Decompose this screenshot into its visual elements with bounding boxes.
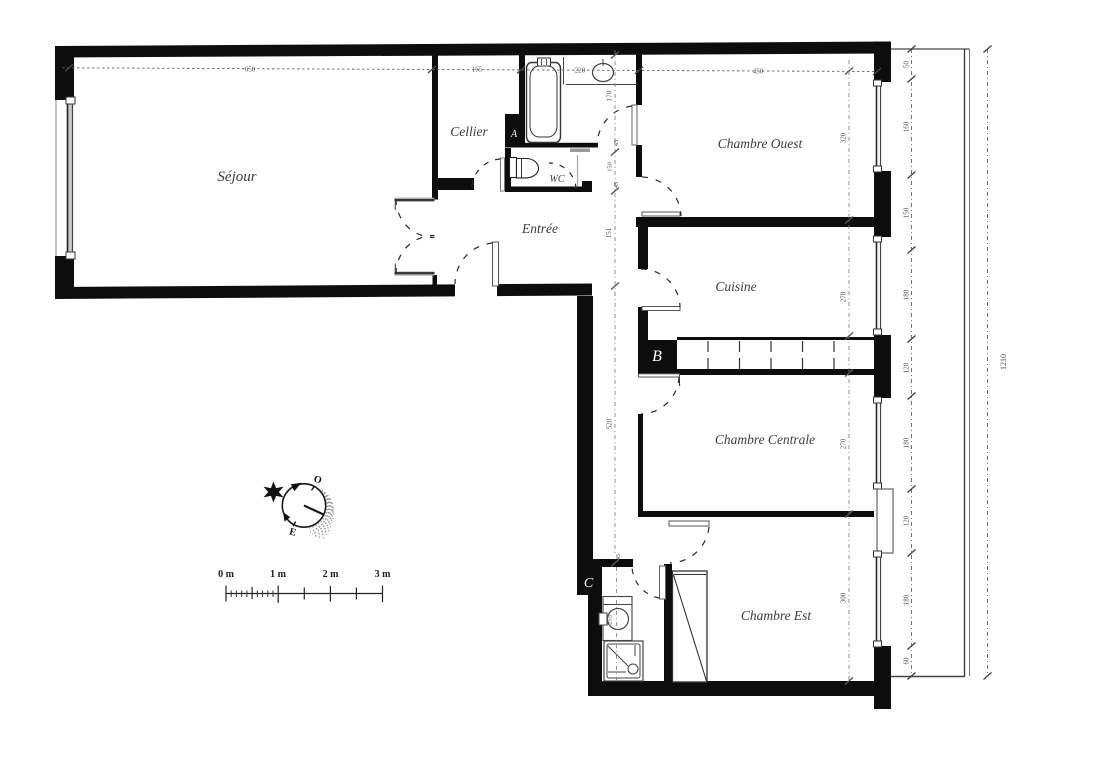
svg-text:120: 120 bbox=[903, 362, 911, 373]
svg-text:170: 170 bbox=[606, 90, 614, 101]
svg-text:50: 50 bbox=[903, 61, 911, 69]
svg-text:450: 450 bbox=[753, 68, 764, 76]
svg-text:180: 180 bbox=[903, 437, 911, 448]
svg-text:Chambre Ouest: Chambre Ouest bbox=[718, 136, 804, 151]
svg-text:255: 255 bbox=[607, 615, 614, 625]
svg-text:120: 120 bbox=[903, 515, 911, 526]
svg-text:Chambre Centrale: Chambre Centrale bbox=[715, 432, 815, 447]
svg-text:220: 220 bbox=[575, 67, 586, 75]
svg-text:45: 45 bbox=[613, 140, 620, 147]
svg-text:151: 151 bbox=[605, 227, 613, 238]
svg-text:3 m: 3 m bbox=[375, 569, 392, 580]
svg-text:1210: 1210 bbox=[999, 354, 1008, 370]
svg-text:60: 60 bbox=[903, 657, 911, 665]
svg-text:Séjour: Séjour bbox=[217, 169, 256, 185]
svg-text:45: 45 bbox=[613, 182, 620, 189]
svg-text:180: 180 bbox=[903, 289, 911, 300]
svg-text:Cellier: Cellier bbox=[450, 124, 488, 139]
svg-text:650: 650 bbox=[245, 66, 256, 74]
svg-text:O: O bbox=[312, 474, 323, 487]
svg-text:45: 45 bbox=[615, 554, 622, 561]
svg-text:E: E bbox=[288, 526, 298, 538]
svg-text:A: A bbox=[510, 129, 518, 140]
svg-text:B: B bbox=[652, 348, 662, 365]
svg-text:165: 165 bbox=[472, 66, 483, 74]
svg-text:160: 160 bbox=[903, 121, 911, 132]
svg-text:WC: WC bbox=[550, 174, 565, 185]
svg-text:150: 150 bbox=[903, 207, 911, 218]
svg-text:150: 150 bbox=[607, 162, 614, 172]
svg-text:1 m: 1 m bbox=[270, 569, 287, 580]
svg-text:0 m: 0 m bbox=[218, 569, 235, 580]
svg-text:320: 320 bbox=[840, 132, 848, 143]
svg-text:520: 520 bbox=[606, 418, 614, 429]
svg-text:Chambre Est: Chambre Est bbox=[741, 608, 813, 623]
svg-text:Cuisine: Cuisine bbox=[715, 279, 756, 294]
svg-text:270: 270 bbox=[840, 438, 848, 449]
svg-text:300: 300 bbox=[840, 592, 848, 603]
svg-text:2 m: 2 m bbox=[323, 569, 340, 580]
svg-text:278: 278 bbox=[840, 291, 848, 302]
svg-text:Entrée: Entrée bbox=[521, 221, 558, 236]
svg-text:C: C bbox=[584, 576, 594, 591]
svg-text:180: 180 bbox=[903, 594, 911, 605]
